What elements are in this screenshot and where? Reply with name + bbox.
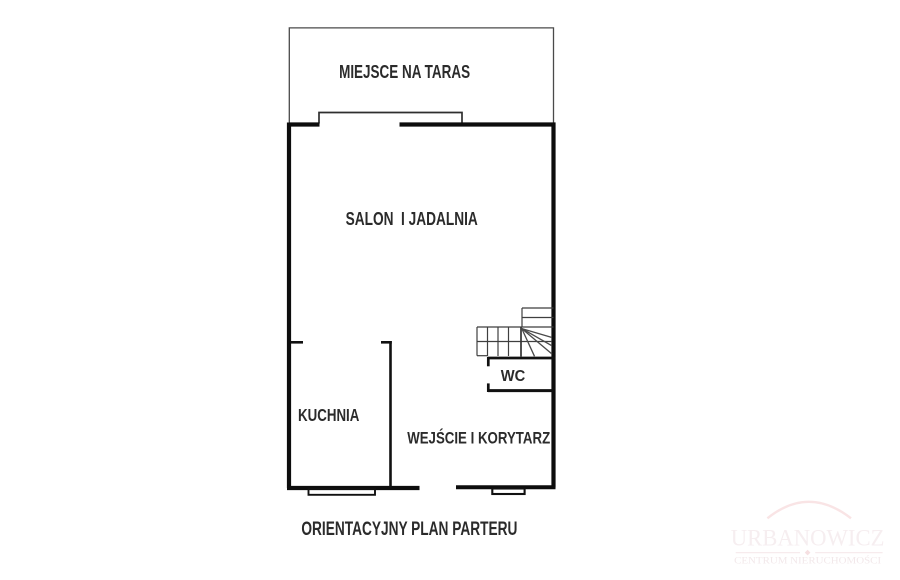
- svg-text:KUCHNIA: KUCHNIA: [298, 405, 360, 425]
- svg-text:WC: WC: [501, 368, 526, 385]
- svg-text:ORIENTACYJNY PLAN PARTERU: ORIENTACYJNY PLAN PARTERU: [301, 518, 517, 540]
- svg-text:SALON I JADALNIA: SALON I JADALNIA: [346, 209, 478, 229]
- svg-text:CENTRUM NIERUCHOMOŚCI: CENTRUM NIERUCHOMOŚCI: [734, 555, 881, 567]
- svg-text:MIEJSCE NA TARAS: MIEJSCE NA TARAS: [339, 61, 470, 82]
- svg-text:WEJŚCIE I KORYTARZ: WEJŚCIE I KORYTARZ: [407, 429, 550, 448]
- svg-text:URBANOWICZ: URBANOWICZ: [731, 526, 885, 551]
